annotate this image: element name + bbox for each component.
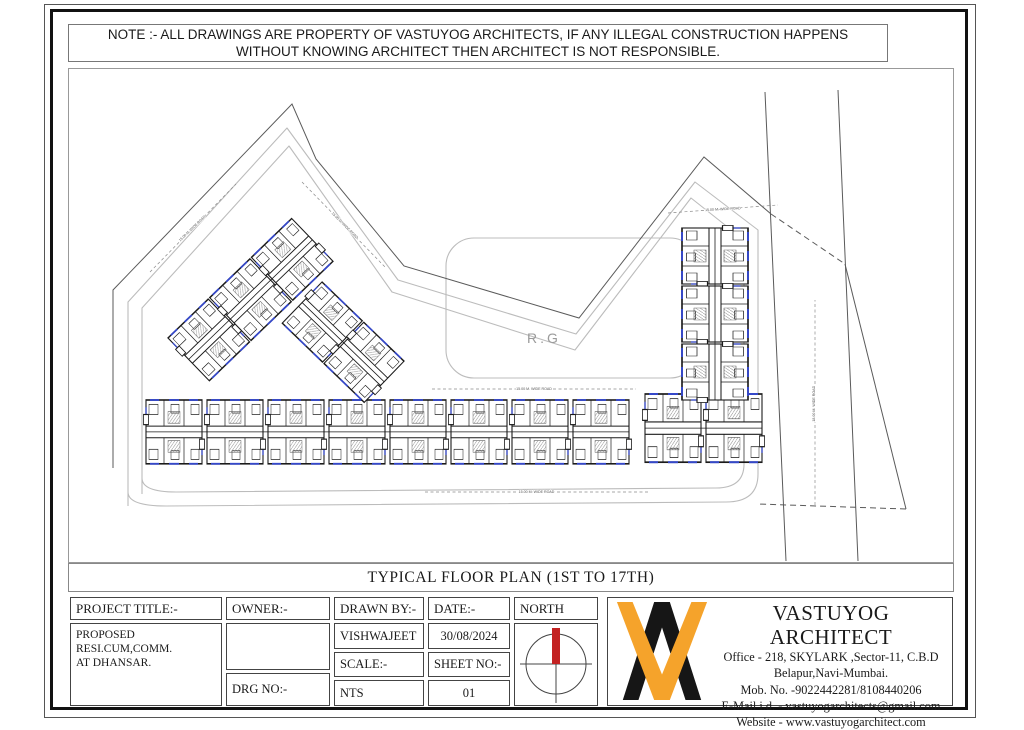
building-cluster [682,226,748,403]
site-plan-canvas: 15.00 M. WIDE ROAD15.00 M. WIDE ROAD15.0… [68,68,954,563]
sheet-no-value-cell: 01 [428,680,510,706]
owner-header-cell: OWNER:- [226,597,330,620]
owner-value-cell [226,623,330,670]
svg-text:R.G: R.G [527,330,561,346]
scale-value: NTS [340,686,364,701]
date-header-cell: DATE:- [428,597,510,620]
architect-mobile: Mob. No. -9022442281/8108440206 [712,682,950,698]
note-line-1: NOTE :- ALL DRAWINGS ARE PROPERTY OF VAS… [69,26,887,43]
date-label: DATE:- [434,601,475,616]
north-label: NORTH [520,601,564,616]
note-line-2: WITHOUT KNOWING ARCHITECT THEN ARCHITECT… [69,43,887,60]
building-cluster [280,280,405,404]
project-title-value-cell: PROPOSED RESI.CUM,COMM. AT DHANSAR. [70,623,222,706]
drawn-by-header-cell: DRAWN BY:- [334,597,424,620]
architect-logo-icon [616,602,708,704]
svg-text:15.00 M. WIDE ROAD: 15.00 M. WIDE ROAD [519,490,555,494]
note-box: NOTE :- ALL DRAWINGS ARE PROPERTY OF VAS… [68,24,888,62]
scale-value-cell: NTS [334,680,424,706]
project-title-line2: AT DHANSAR. [76,656,216,670]
sheet-no-header-cell: SHEET NO:- [428,652,510,677]
svg-text:15.00 M. WIDE ROAD: 15.00 M. WIDE ROAD [516,387,552,391]
project-title-line1: PROPOSED RESI.CUM,COMM. [76,628,216,656]
drawn-by-label: DRAWN BY:- [340,601,416,616]
svg-text:15.00 M. WIDE ROAD: 15.00 M. WIDE ROAD [331,211,359,239]
drg-no-label: DRG NO:- [232,682,287,697]
date-value: 30/08/2024 [441,629,498,644]
drg-no-cell: DRG NO:- [226,673,330,706]
architect-address2: Belapur,Navi-Mumbai. [712,665,950,681]
architect-address1: Office - 218, SKYLARK ,Sector-11, C.B.D [712,649,950,665]
project-title-header-cell: PROJECT TITLE:- [70,597,222,620]
architect-cell: VASTUYOG ARCHITECT Office - 218, SKYLARK… [607,597,953,706]
sheet-no-label: SHEET NO:- [434,657,501,672]
drawing-title-bar: TYPICAL FLOOR PLAN (1ST TO 17TH) [68,563,954,592]
sheet-no-value: 01 [463,686,476,701]
building-cluster [643,394,765,462]
date-value-cell: 30/08/2024 [428,623,510,649]
north-needle [552,628,560,664]
svg-text:18.00 M. WIDE ROAD: 18.00 M. WIDE ROAD [812,385,816,421]
architect-website: Website - www.vastuyogarchitect.com [712,714,950,730]
north-header-cell: NORTH [514,597,598,620]
architect-name: VASTUYOG ARCHITECT [712,601,950,649]
owner-label: OWNER:- [232,601,288,616]
drawn-by-value: VISHWAJEET [340,629,416,644]
architect-email: E-Mail i.d. - vastuyogarchitects@gmail.c… [712,698,950,714]
drawn-by-value-cell: VISHWAJEET [334,623,424,649]
north-compass-icon [515,624,597,705]
north-compass-cell [514,623,598,706]
building-cluster [144,400,632,464]
svg-text:15.00 M. WIDE ROAD: 15.00 M. WIDE ROAD [705,206,741,212]
scale-label: SCALE:- [340,657,387,672]
drawing-title: TYPICAL FLOOR PLAN (1ST TO 17TH) [368,569,655,587]
scale-header-cell: SCALE:- [334,652,424,677]
project-title-label: PROJECT TITLE:- [76,601,178,616]
